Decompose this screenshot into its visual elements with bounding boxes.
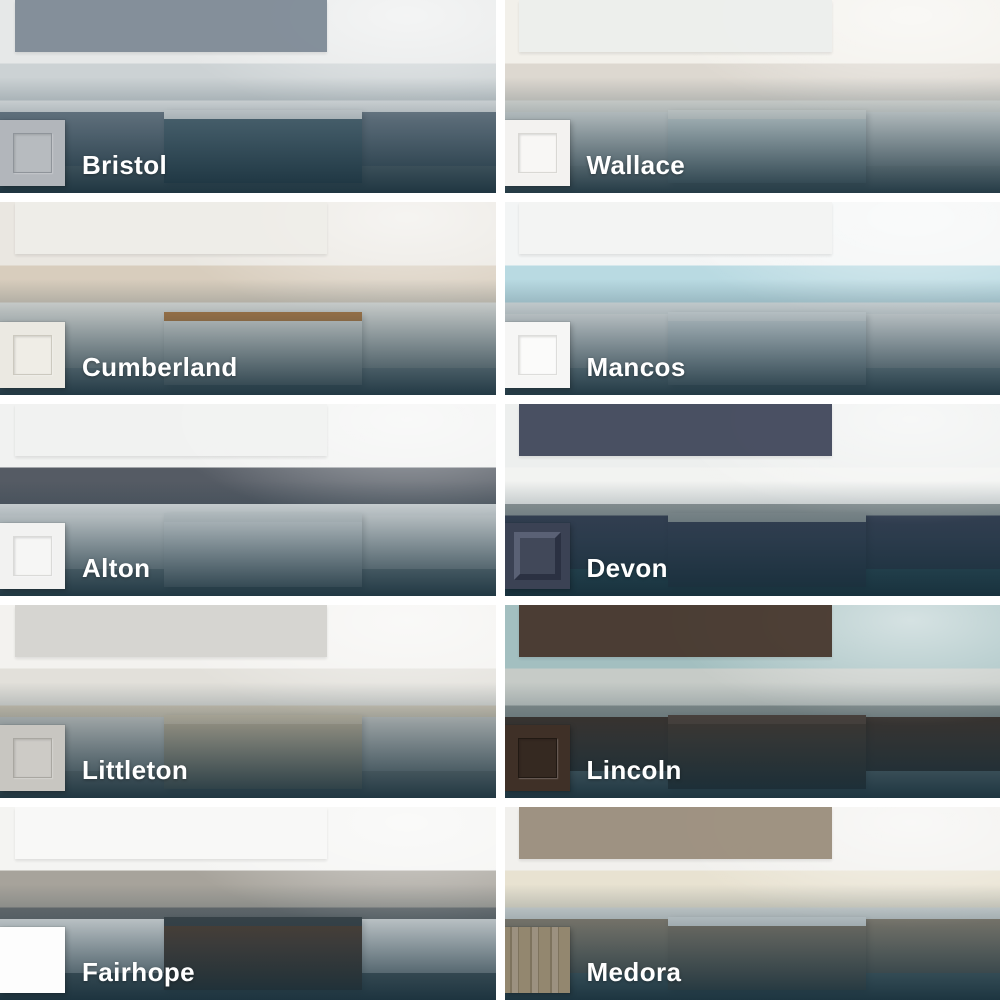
style-name-label: Cumberland: [82, 352, 238, 383]
cabinet-door-swatch: [505, 322, 570, 388]
style-tile-littleton[interactable]: Littleton: [0, 605, 496, 798]
bottom-gradient-overlay: [0, 807, 496, 1000]
style-name-label: Wallace: [587, 150, 686, 181]
cabinet-door-swatch: [505, 927, 570, 993]
style-tile-bristol[interactable]: Bristol: [0, 0, 496, 193]
bottom-gradient-overlay: [0, 0, 496, 193]
door-panel: [518, 738, 557, 778]
door-panel: [518, 335, 557, 375]
style-name-label: Alton: [82, 553, 150, 584]
kitchen-styles-grid: Bristol Wallace Cumberland Mancos: [0, 0, 1000, 1000]
style-tile-mancos[interactable]: Mancos: [505, 202, 1000, 395]
bottom-gradient-overlay: [0, 404, 496, 597]
style-name-label: Devon: [587, 553, 668, 584]
style-name-label: Bristol: [82, 150, 167, 181]
style-name-label: Mancos: [587, 352, 686, 383]
style-tile-alton[interactable]: Alton: [0, 404, 496, 597]
style-name-label: Lincoln: [587, 755, 682, 786]
cabinet-door-swatch: [505, 523, 570, 589]
bottom-gradient-overlay: [505, 404, 1000, 597]
bottom-gradient-overlay: [505, 0, 1000, 193]
cabinet-door-swatch: [0, 120, 65, 186]
style-tile-devon[interactable]: Devon: [505, 404, 1000, 597]
style-tile-fairhope[interactable]: Fairhope: [0, 807, 496, 1000]
cabinet-door-swatch: [505, 120, 570, 186]
style-name-label: Littleton: [82, 755, 188, 786]
cabinet-door-swatch: [0, 523, 65, 589]
bottom-gradient-overlay: [0, 605, 496, 798]
door-panel: [13, 133, 52, 173]
cabinet-door-swatch: [0, 322, 65, 388]
bottom-gradient-overlay: [505, 807, 1000, 1000]
door-panel: [13, 738, 52, 778]
bottom-gradient-overlay: [505, 202, 1000, 395]
door-panel: [514, 532, 561, 580]
door-panel: [518, 133, 557, 173]
cabinet-door-swatch: [0, 725, 65, 791]
bottom-gradient-overlay: [505, 605, 1000, 798]
style-name-label: Fairhope: [82, 957, 195, 988]
bottom-gradient-overlay: [0, 202, 496, 395]
style-tile-cumberland[interactable]: Cumberland: [0, 202, 496, 395]
door-panel: [13, 536, 52, 576]
style-name-label: Medora: [587, 957, 682, 988]
style-tile-medora[interactable]: Medora: [505, 807, 1000, 1000]
style-tile-wallace[interactable]: Wallace: [505, 0, 1000, 193]
cabinet-door-swatch: [505, 725, 570, 791]
style-tile-lincoln[interactable]: Lincoln: [505, 605, 1000, 798]
door-panel: [13, 335, 52, 375]
cabinet-door-swatch: [0, 927, 65, 993]
